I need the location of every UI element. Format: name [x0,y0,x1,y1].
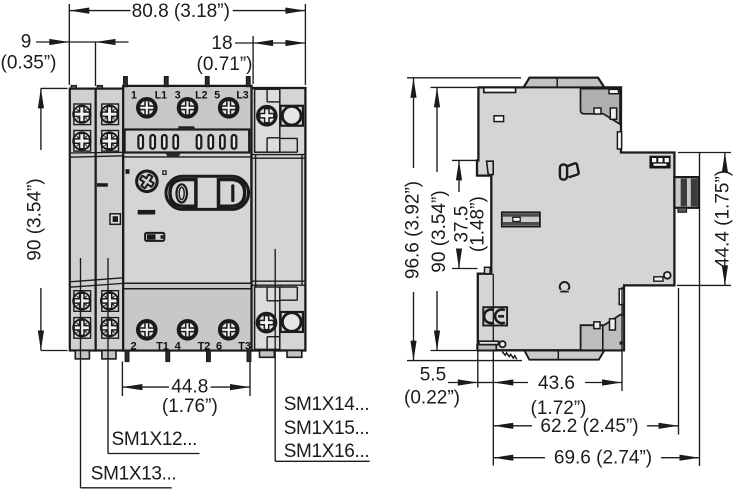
svg-text:90 (3.54”): 90 (3.54”) [25,178,46,260]
svg-text:9: 9 [21,32,32,53]
svg-text:SM1X15...: SM1X15... [284,418,370,439]
svg-text:(1.76”): (1.76”) [162,396,218,417]
svg-text:18: 18 [211,33,232,54]
svg-text:(0.22”): (0.22”) [404,387,460,408]
svg-text:44.8: 44.8 [171,376,208,397]
svg-text:3: 3 [175,90,181,102]
svg-text:L2: L2 [195,90,207,102]
svg-text:2: 2 [131,340,137,352]
svg-text:62.2 (2.45”): 62.2 (2.45”) [540,416,638,437]
svg-text:5: 5 [214,90,220,102]
svg-text:44.4 (1.75”): 44.4 (1.75”) [713,170,734,268]
svg-text:90 (3.54”): 90 (3.54”) [429,190,450,272]
svg-text:T2: T2 [198,340,211,352]
svg-text:SM1X13...: SM1X13... [91,464,177,485]
svg-text:(0.35”): (0.35”) [1,52,57,73]
svg-text:69.6 (2.74”): 69.6 (2.74”) [554,448,652,469]
svg-text:L1: L1 [155,90,167,102]
svg-text:4: 4 [175,340,182,352]
svg-text:L3: L3 [236,90,248,102]
svg-text:6: 6 [216,340,222,352]
svg-text:96.6 (3.92”): 96.6 (3.92”) [403,181,424,279]
svg-text:1: 1 [131,90,137,102]
svg-text:(1.48”): (1.48”) [468,196,489,252]
svg-text:T3: T3 [238,340,251,352]
svg-text:T1: T1 [156,340,169,352]
svg-text:5.5: 5.5 [420,364,446,385]
svg-text:80.8 (3.18”): 80.8 (3.18”) [132,1,230,22]
svg-text:SM1X12...: SM1X12... [112,429,198,450]
svg-text:(0.71”): (0.71”) [197,54,253,75]
svg-text:43.6: 43.6 [538,373,575,394]
svg-text:SM1X14...: SM1X14... [284,394,370,415]
svg-text:SM1X16...: SM1X16... [284,441,370,462]
